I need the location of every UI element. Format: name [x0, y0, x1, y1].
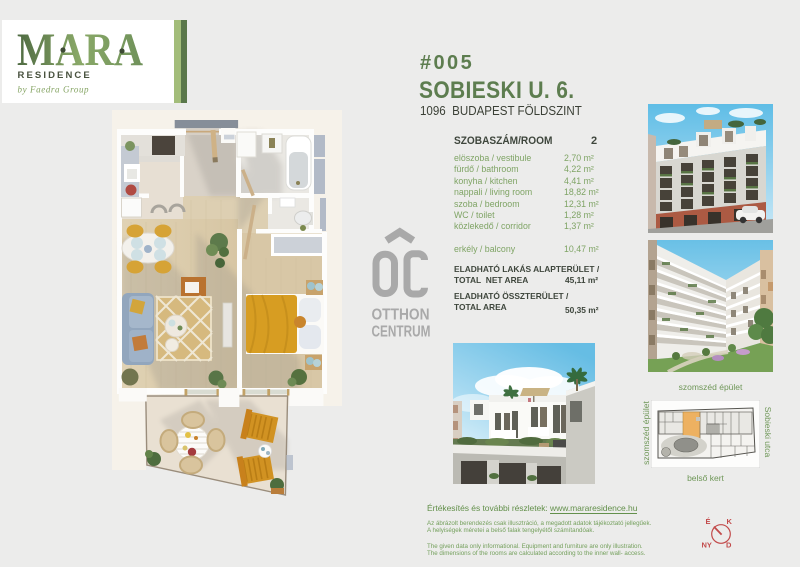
svg-text:CENTRUM: CENTRUM — [372, 324, 431, 341]
svg-text:OTTHON: OTTHON — [372, 307, 430, 324]
svg-text:NY: NY — [702, 541, 712, 550]
svg-text:É: É — [706, 517, 711, 526]
svg-text:RESIDENCE: RESIDENCE — [18, 70, 92, 81]
svg-text:D: D — [726, 541, 732, 550]
svg-text:by Faedra Group: by Faedra Group — [18, 85, 90, 95]
svg-text:K: K — [727, 517, 733, 526]
